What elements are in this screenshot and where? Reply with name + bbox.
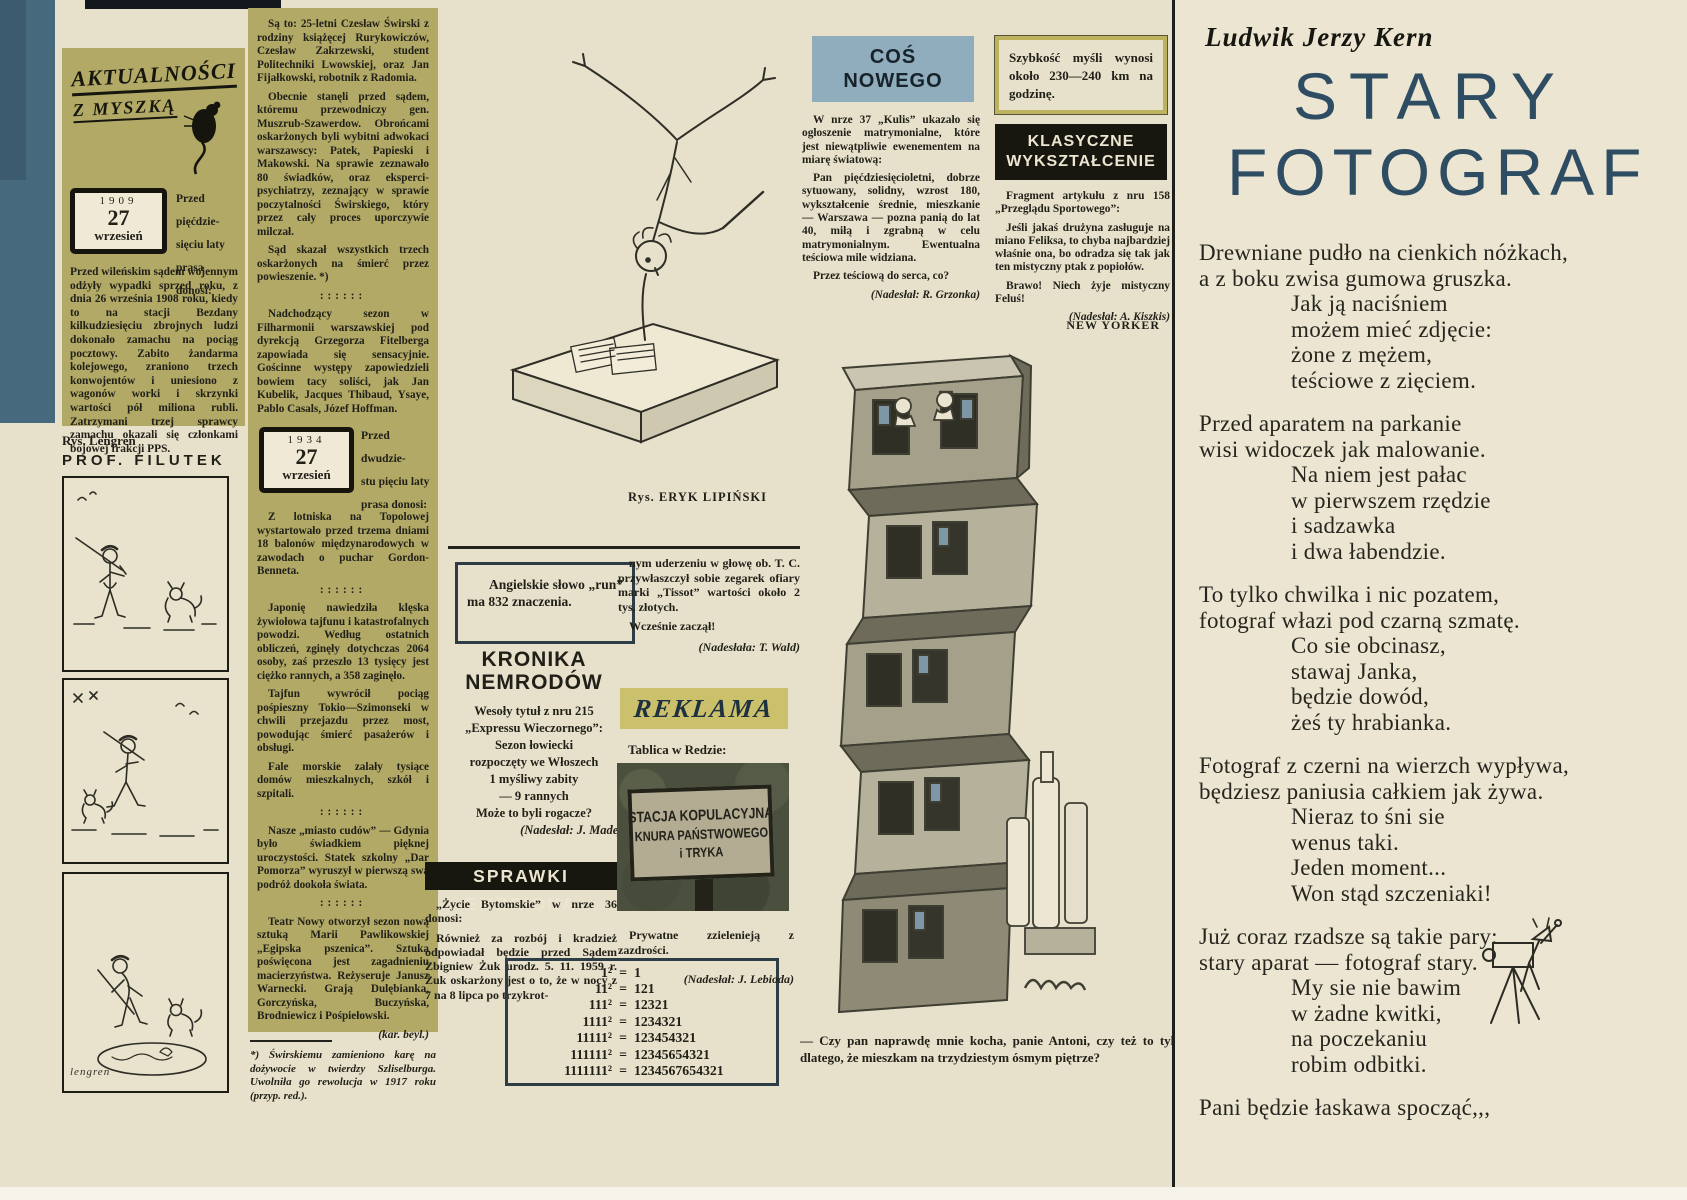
mouse-silhouette-icon bbox=[182, 98, 228, 176]
filutek-panel-1 bbox=[62, 476, 229, 672]
kronika-line: rozpoczęty we Włoszech bbox=[438, 754, 630, 771]
kronika-line: Może to byli rogacze? bbox=[438, 805, 630, 822]
math-lhs: 11² bbox=[508, 981, 612, 997]
sprawki-continuation: nym uderzeniu w głowę ob. T. C. przywłas… bbox=[618, 556, 800, 659]
poem-line: fotograf włazi pod czarną szmatę. bbox=[1199, 608, 1681, 634]
poem-line: w pierwszem rzędzie bbox=[1291, 488, 1681, 514]
paragraph: Nasze „miasto cudów” — Gdynia było świad… bbox=[257, 825, 429, 893]
math-lhs: 1111111² bbox=[508, 1063, 612, 1079]
paragraph: Obecnie stanęli przed sądem, któremu prz… bbox=[257, 91, 429, 240]
math-row: 1111111² = 1234567654321 bbox=[508, 1063, 776, 1079]
math-row: 111² = 12321 bbox=[508, 997, 776, 1013]
footnote: *) Świrskiemu zamieniono karę na dożywoc… bbox=[250, 1040, 436, 1103]
page-left-blue-band bbox=[0, 0, 55, 423]
math-lhs: 1² bbox=[508, 965, 612, 981]
klasyczne-article: Fragment artykułu z nru 158 „Przeglądu S… bbox=[995, 190, 1170, 330]
equals-sign: = bbox=[612, 997, 634, 1013]
equals-sign: = bbox=[612, 1063, 634, 1079]
poem-line: Drewniane pudło na cienkich nóżkach, bbox=[1199, 240, 1681, 266]
col1-article: Przed wileńskim sądem wojennym odżyły wy… bbox=[70, 266, 238, 456]
poem-line: wisi widoczek jak malowanie. bbox=[1199, 437, 1681, 463]
kronika-line: — 9 rannych bbox=[438, 788, 630, 805]
poem-line: Jeden moment... bbox=[1291, 855, 1681, 881]
datebox-day: 27 bbox=[264, 447, 349, 467]
poem-author: Ludwik Jerzy Kern bbox=[1205, 22, 1434, 53]
math-row: 1111² = 1234321 bbox=[508, 1014, 776, 1030]
cos-nowego-article: W nrze 37 „Kulis” ukazało się ogłoszenie… bbox=[802, 114, 980, 307]
math-lhs: 111² bbox=[508, 997, 612, 1013]
col2-paragraphs-a: Są to: 25-letni Czesław Świrski z rodzin… bbox=[257, 18, 429, 416]
poem-line: Pani będzie łaskawa spocząć,,, bbox=[1199, 1095, 1681, 1121]
paragraph: Teatr Nowy otworzył sezon nową sztuką Ma… bbox=[257, 916, 429, 1024]
paragraph: Nadchodzący sezon w Filharmonii warszaws… bbox=[257, 308, 429, 416]
klasyczne-banner: KLASYCZNE WYKSZTAŁCENIE bbox=[995, 124, 1167, 180]
poem-line: możem mieć zdjęcie: bbox=[1291, 317, 1681, 343]
filutek-panel-3 bbox=[62, 872, 229, 1093]
run-fact-text: Angielskie słowo „run” ma 832 znaczenia. bbox=[467, 576, 623, 610]
kronika-line: Sezon łowiecki bbox=[438, 737, 630, 754]
poem-title-line2: FOTOGRAF bbox=[1227, 134, 1648, 210]
paragraph: Tajfun wywrócił pociąg pośpieszny Tokio—… bbox=[257, 688, 429, 756]
poem-line: Co sie obcinasz, bbox=[1291, 633, 1681, 659]
poem-line: żone z mężem, bbox=[1291, 342, 1681, 368]
sign-line: KNURA PAŃSTWOWEGO bbox=[634, 824, 768, 844]
magazine-page-scan: { "colors":{"page_cream":"#e7e0ca","oliv… bbox=[0, 0, 1687, 1200]
paragraph: Wcześnie zaczął! bbox=[618, 619, 800, 634]
filutek-panel-2 bbox=[62, 678, 229, 864]
math-lhs: 111111² bbox=[508, 1047, 612, 1063]
klasyczne-title-line2: WYKSZTAŁCENIE bbox=[1006, 152, 1156, 172]
kronika-line: „Expressu Wieczornego”: bbox=[438, 720, 630, 737]
reklama-intro: Tablica w Redzie: bbox=[628, 742, 726, 758]
cos-nowego-banner: COŚ NOWEGO bbox=[812, 36, 974, 102]
math-rhs: 123454321 bbox=[634, 1030, 696, 1046]
math-rhs: 1234567654321 bbox=[634, 1063, 724, 1079]
sign-post bbox=[695, 875, 713, 911]
scanner-bottom-strip bbox=[0, 1187, 1687, 1200]
paragraph: Fale morskie zalały tysiące domów mieszk… bbox=[257, 761, 429, 802]
kronika-line: Wesoły tytuł z nru 215 bbox=[438, 703, 630, 720]
klasyczne-title-line1: KLASYCZNE bbox=[1028, 132, 1135, 152]
lengren-credit: Rys. Lengren bbox=[62, 433, 136, 449]
math-rhs: 12345654321 bbox=[634, 1047, 710, 1063]
paragraph: Sąd skazał wszystkich trzech oskarżonych… bbox=[257, 244, 429, 285]
col2-daterow: 1934 27 wrzesień Przed dwudzie- stu pięc… bbox=[257, 421, 429, 505]
footnote-rule bbox=[250, 1040, 332, 1042]
math-lhs: 1111² bbox=[508, 1014, 612, 1030]
kronika-lines: Wesoły tytuł z nru 215„Expressu Wieczorn… bbox=[438, 703, 630, 839]
paragraph: Są to: 25-letni Czesław Świrski z rodzin… bbox=[257, 18, 429, 86]
paragraph: W nrze 37 „Kulis” ukazało się ogłoszenie… bbox=[802, 114, 980, 167]
poem-line: Nieraz to śni sie bbox=[1291, 804, 1681, 830]
poem-line: stary aparat — fotograf stary. bbox=[1199, 950, 1681, 976]
paragraph: (Nadesłał: R. Grzonka) bbox=[802, 289, 980, 302]
speed-of-thought-box: Szybkość myśli wynosi około 230—240 km n… bbox=[995, 36, 1167, 114]
kronika-line: (Nadesłał: J. Madej) bbox=[438, 822, 630, 839]
poem-line: będzie dowód, bbox=[1291, 684, 1681, 710]
lipinski-credit: Rys. ERYK LIPIŃSKI bbox=[595, 490, 800, 505]
equals-sign: = bbox=[612, 1030, 634, 1046]
datebox-1909: 1909 27 wrzesień bbox=[70, 188, 167, 254]
photographer-drawing bbox=[1463, 905, 1563, 1030]
poem-title-line1: STARY bbox=[1293, 58, 1567, 134]
new-yorker-building-cartoon bbox=[815, 348, 1170, 1023]
math-row: 11111² = 123454321 bbox=[508, 1030, 776, 1046]
sprawki-banner: SPRAWKI EMBRIONA bbox=[425, 862, 617, 890]
equals-sign: = bbox=[612, 1047, 634, 1063]
poem-line: Na niem jest pałac bbox=[1291, 462, 1681, 488]
column-aktualnosci: AKTUALNOŚCI Z MYSZKĄ 1909 27 wrzesień Pr… bbox=[62, 48, 245, 426]
poem-line: Won stąd szczeniaki! bbox=[1291, 881, 1681, 907]
page-left-band-shade bbox=[0, 0, 26, 180]
reklama-banner: REKLAMA bbox=[620, 688, 788, 729]
kronika-nemrodow: KRONIKA NEMRODÓW Wesoły tytuł z nru 215„… bbox=[438, 648, 630, 839]
kronika-title-line2: NEMRODÓW bbox=[438, 671, 630, 694]
math-rhs: 12321 bbox=[634, 997, 669, 1013]
poem-line: i sadzawka bbox=[1291, 513, 1681, 539]
poem-line: teściowe z zięciem. bbox=[1291, 368, 1681, 394]
paragraph: Z lotniska na Topolowej wystartowało prz… bbox=[257, 511, 429, 579]
math-lhs: 11111² bbox=[508, 1030, 612, 1046]
sign-line: i TRYKA bbox=[679, 844, 723, 861]
poem-line: wenus taki. bbox=[1291, 830, 1681, 856]
datebox-day: 27 bbox=[75, 208, 162, 228]
filutek-panel3-drawing bbox=[64, 874, 226, 1090]
cos-title-line2: NOWEGO bbox=[843, 69, 942, 93]
paragraph: Pan pięćdziesięcioletni, dobrze sytuowan… bbox=[802, 172, 980, 265]
paragraph: Przez teściową do serca, co? bbox=[802, 270, 980, 283]
poem-line: Jak ją naciśniem bbox=[1291, 291, 1681, 317]
math-rhs: 1234321 bbox=[634, 1014, 682, 1030]
footnote-text: *) Świrskiemu zamieniono karę na dożywoc… bbox=[250, 1049, 436, 1103]
poem-line: będziesz paniusia całkiem jak żywa. bbox=[1199, 779, 1681, 805]
poem-line: Już coraz rzadsze są takie pary: bbox=[1199, 924, 1681, 950]
col2-heading: Przed dwudzie- stu pięciu laty prasa don… bbox=[361, 425, 431, 517]
reklama-comment: Prywatne zzielenieją z zazdrości. bbox=[618, 928, 794, 957]
sign-photo: STACJA KOPULACYJNAKNURA PAŃSTWOWEGOi TRY… bbox=[617, 763, 789, 911]
reklama-label: REKLAMA bbox=[633, 694, 776, 724]
cos-title-line1: COŚ bbox=[870, 45, 916, 69]
poem-line: żeś ty hrabianka. bbox=[1291, 710, 1681, 736]
column-history-notes: Są to: 25-letni Czesław Świrski z rodzin… bbox=[248, 8, 438, 1032]
paragraph: :::::: bbox=[257, 584, 429, 598]
conductor-handstand-drawing bbox=[445, 22, 805, 484]
masthead-line1: AKTUALNOŚCI bbox=[71, 58, 237, 97]
poem-line: i dwa łabendzie. bbox=[1291, 539, 1681, 565]
filutek-panel1-drawing bbox=[64, 478, 226, 669]
poem-line: Przed aparatem na parkanie bbox=[1199, 411, 1681, 437]
datebox-month: wrzesień bbox=[264, 467, 349, 482]
filutek-panel2-drawing bbox=[64, 680, 226, 861]
sign-board: STACJA KOPULACYJNAKNURA PAŃSTWOWEGOi TRY… bbox=[627, 785, 774, 882]
equals-sign: = bbox=[612, 1014, 634, 1030]
datebox-month: wrzesień bbox=[75, 228, 162, 243]
masthead-line2: Z MYSZKĄ bbox=[72, 95, 177, 123]
poem-line: Fotograf z czerni na wierzch wypływa, bbox=[1199, 753, 1681, 779]
paragraph: (Nadesłała: T. Wald) bbox=[618, 640, 800, 655]
lengren-signature: lengren bbox=[70, 1066, 110, 1078]
paragraph: Japonię nawiedziła klęska żywiołowa tajf… bbox=[257, 602, 429, 683]
kronika-line: 1 myśliwy zabity bbox=[438, 771, 630, 788]
paragraph: :::::: bbox=[257, 897, 429, 911]
poem-line: To tylko chwilka i nic pozatem, bbox=[1199, 582, 1681, 608]
math-row: 111111² = 12345654321 bbox=[508, 1047, 776, 1063]
paragraph: Fragment artykułu z nru 158 „Przeglądu S… bbox=[995, 190, 1170, 217]
filutek-title: PROF. FILUTEK bbox=[62, 452, 226, 469]
sign-line: STACJA KOPULACYJNA bbox=[628, 804, 773, 826]
poem-line: robim odbitki. bbox=[1291, 1052, 1681, 1078]
col2-paragraphs-b: Z lotniska na Topolowej wystartowało prz… bbox=[257, 511, 429, 1042]
kronika-title-line1: KRONIKA bbox=[438, 648, 630, 671]
paragraph: (Nadesłał: A. Kiszkis) bbox=[995, 311, 1170, 324]
horizontal-rule bbox=[448, 546, 800, 549]
poem-line: a z boku zwisa gumowa gruszka. bbox=[1199, 266, 1681, 292]
paragraph: nym uderzeniu w głowę ob. T. C. przywłas… bbox=[618, 556, 800, 614]
reklama-credit: (Nadesłał: J. Lebioda) bbox=[618, 972, 794, 987]
paragraph: :::::: bbox=[257, 806, 429, 820]
poem-line: stawaj Janka, bbox=[1291, 659, 1681, 685]
paragraph: Jeśli jakaś drużyna zasługuje na miano F… bbox=[995, 222, 1170, 275]
poem-body: Drewniane pudło na cienkich nóżkach,a z … bbox=[1199, 240, 1681, 1121]
cartoon-caption: — Czy pan naprawdę mnie kocha, panie Ant… bbox=[800, 1032, 1188, 1066]
paragraph: :::::: bbox=[257, 290, 429, 304]
datebox-1934: 1934 27 wrzesień bbox=[259, 427, 354, 493]
run-fact-box: Angielskie słowo „run” ma 832 znaczenia. bbox=[455, 562, 635, 644]
right-page: Ludwik Jerzy Kern STARY FOTOGRAF Drewnia… bbox=[1172, 0, 1687, 1187]
paragraph: Brawo! Niech żyje mistyczny Feluś! bbox=[995, 280, 1170, 307]
